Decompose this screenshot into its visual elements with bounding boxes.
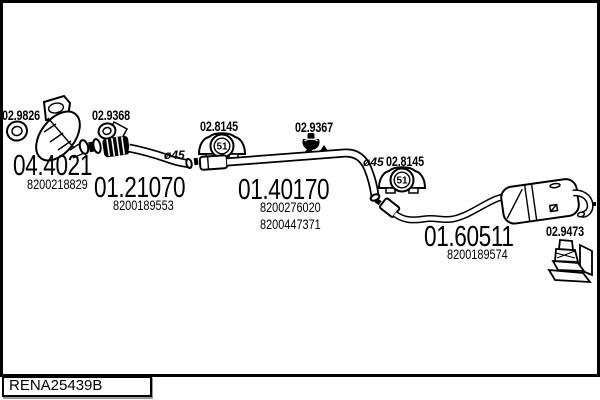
catalog-reference: RENA25439B [9, 377, 102, 394]
catalog-reference-box: RENA25439B [2, 376, 152, 397]
diagram-frame [0, 0, 600, 377]
exhaust-diagram-page: 51 51 [0, 0, 600, 400]
